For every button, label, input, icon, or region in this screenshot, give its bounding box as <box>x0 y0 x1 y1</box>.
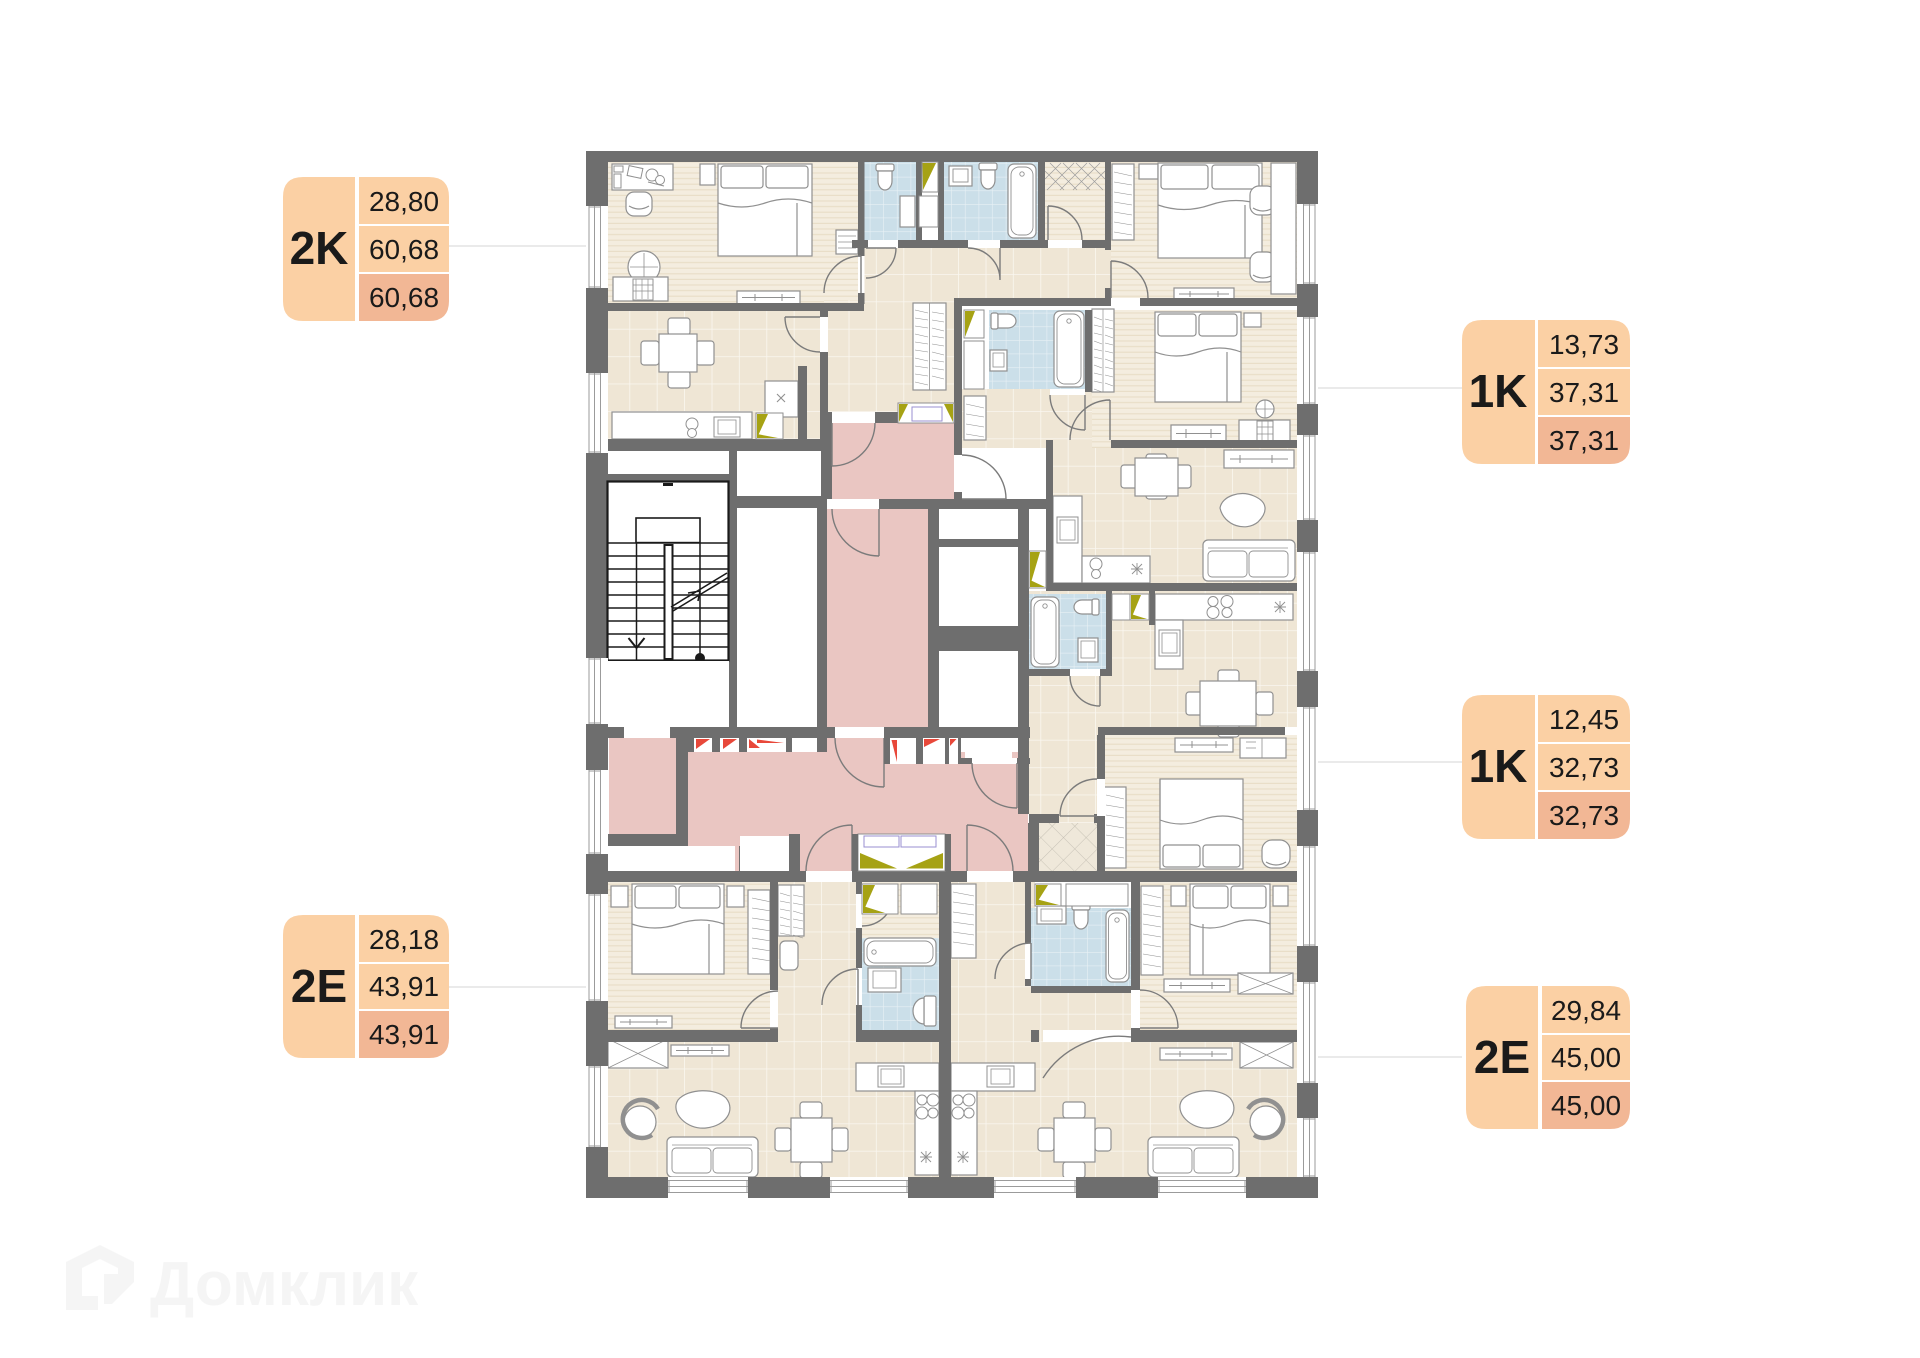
svg-text:1K: 1K <box>1469 365 1528 417</box>
svg-text:2K: 2K <box>290 222 349 274</box>
svg-text:43,91: 43,91 <box>369 1019 439 1050</box>
svg-text:2E: 2E <box>1474 1031 1530 1083</box>
svg-text:60,68: 60,68 <box>369 282 439 313</box>
svg-text:Домклик: Домклик <box>150 1250 419 1319</box>
svg-text:29,84: 29,84 <box>1551 995 1621 1026</box>
svg-text:1K: 1K <box>1469 740 1528 792</box>
svg-text:28,18: 28,18 <box>369 924 439 955</box>
svg-text:12,45: 12,45 <box>1549 704 1619 735</box>
svg-text:28,80: 28,80 <box>369 186 439 217</box>
svg-text:43,91: 43,91 <box>369 971 439 1002</box>
svg-text:45,00: 45,00 <box>1551 1042 1621 1073</box>
svg-text:45,00: 45,00 <box>1551 1090 1621 1121</box>
svg-text:32,73: 32,73 <box>1549 800 1619 831</box>
svg-text:2E: 2E <box>291 960 347 1012</box>
svg-text:13,73: 13,73 <box>1549 329 1619 360</box>
svg-text:37,31: 37,31 <box>1549 425 1619 456</box>
svg-text:60,68: 60,68 <box>369 234 439 265</box>
svg-text:32,73: 32,73 <box>1549 752 1619 783</box>
svg-text:37,31: 37,31 <box>1549 377 1619 408</box>
